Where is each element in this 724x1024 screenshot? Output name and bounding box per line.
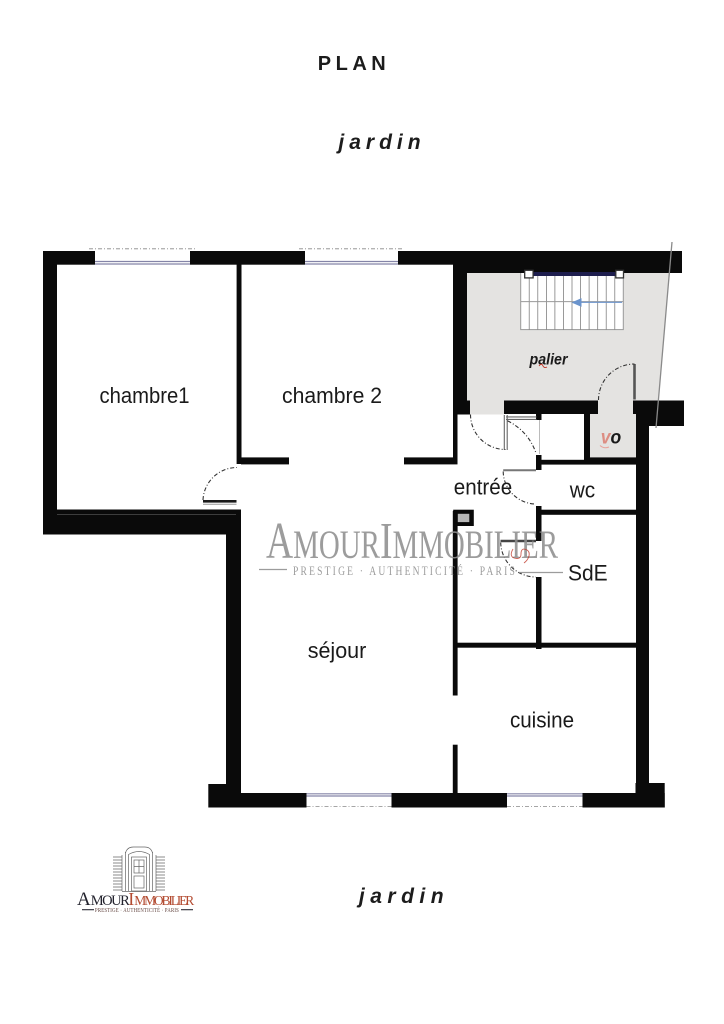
svg-text:wc: wc <box>569 478 595 503</box>
svg-text:AMOURIMMOBILIER: AMOURIMMOBILIER <box>77 889 194 910</box>
svg-text:palier: palier <box>529 352 569 369</box>
svg-text:vo: vo <box>601 426 622 448</box>
svg-text:AMOURIMMOBILIER: AMOURIMMOBILIER <box>266 513 558 570</box>
svg-text:chambre 2: chambre 2 <box>282 383 382 408</box>
svg-text:cuisine: cuisine <box>510 708 574 733</box>
svg-text:jardin: jardin <box>356 885 449 908</box>
svg-text:jardin: jardin <box>335 131 425 154</box>
svg-text:SdE: SdE <box>568 561 608 586</box>
svg-text:PLAN: PLAN <box>318 53 390 75</box>
svg-text:séjour: séjour <box>308 638 367 663</box>
svg-text:chambre1: chambre1 <box>100 383 190 408</box>
svg-text:entrée: entrée <box>454 475 512 500</box>
svg-text:PRESTIGE · AUTHENTICITÉ · PARI: PRESTIGE · AUTHENTICITÉ · PARIS <box>95 906 179 914</box>
svg-text:PRESTIGE · AUTHENTICITÉ · PARI: PRESTIGE · AUTHENTICITÉ · PARIS <box>293 563 517 578</box>
